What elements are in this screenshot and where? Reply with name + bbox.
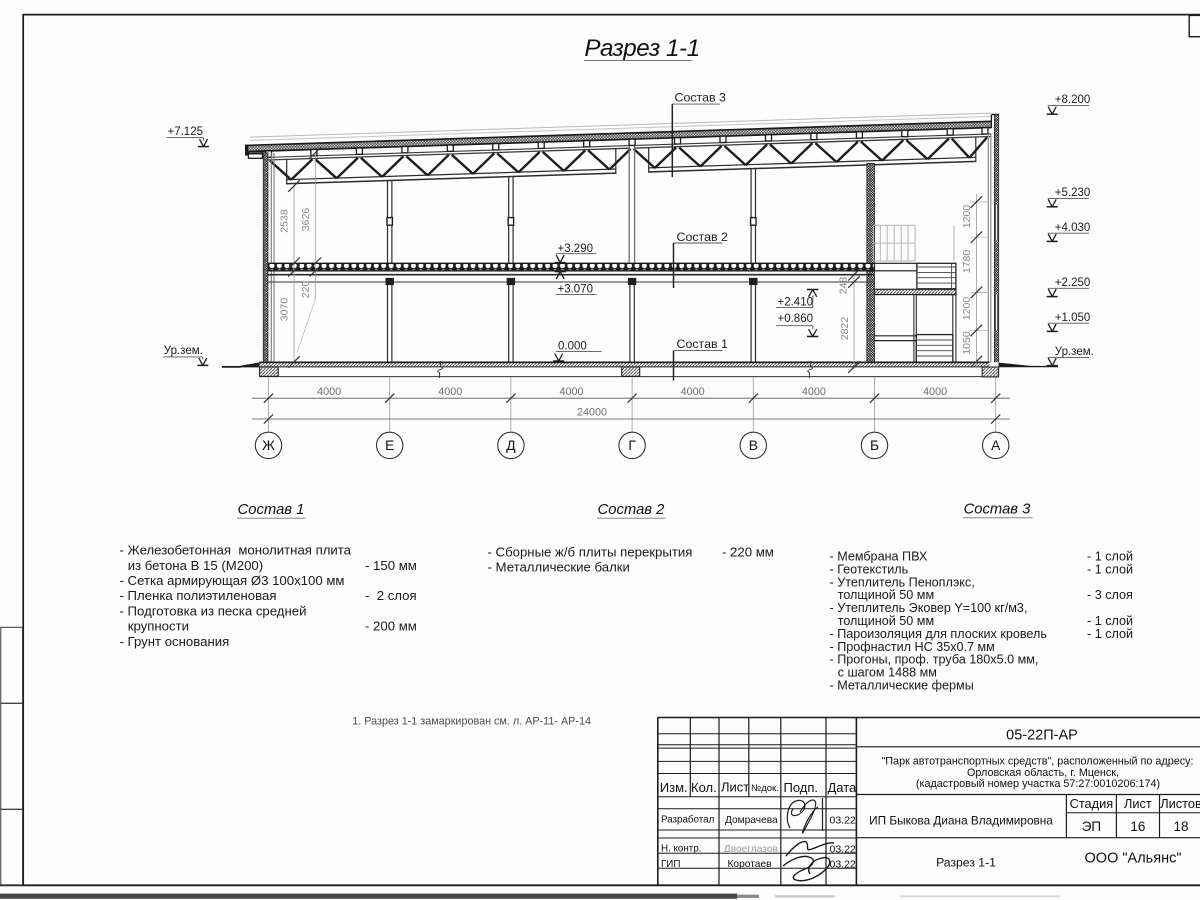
svg-text:Состав 2: Состав 2: [598, 502, 666, 518]
svg-text:03.22: 03.22: [830, 814, 856, 826]
svg-text:- 1 слой: - 1 слой: [1087, 614, 1133, 628]
svg-text:ООО "Альянс": ООО "Альянс": [1085, 851, 1182, 867]
svg-text:+3.290: +3.290: [558, 243, 594, 255]
svg-text:Домрачева: Домрачева: [725, 815, 778, 826]
svg-text:4000: 4000: [559, 386, 583, 398]
svg-text:03.22: 03.22: [830, 843, 856, 855]
svg-text:+2.250: +2.250: [1055, 277, 1091, 289]
svg-text:+5.230: +5.230: [1055, 187, 1091, 199]
svg-text:- Металлические фермы: - Металлические фермы: [830, 679, 974, 693]
svg-text:- Грунт основания: - Грунт основания: [120, 634, 230, 649]
svg-text:- Металлические балки: - Металлические балки: [488, 560, 630, 575]
svg-text:крупности: крупности: [128, 619, 189, 634]
svg-text:24000: 24000: [577, 407, 607, 419]
svg-text:Г: Г: [628, 438, 636, 453]
svg-text:- Прогоны, проф. труба 180х5.0: - Прогоны, проф. труба 180х5.0 мм,: [830, 653, 1039, 667]
svg-text:+2.410: +2.410: [778, 297, 814, 309]
svg-text:Состав 1: Состав 1: [677, 337, 728, 351]
svg-text:- Пленка полиэтиленовая: - Пленка полиэтиленовая: [120, 588, 277, 603]
svg-text:- Сборные ж/б плиты перекрытия: - Сборные ж/б плиты перекрытия: [488, 545, 693, 560]
svg-text:Подп.: Подп.: [784, 780, 819, 795]
svg-text:Изм.: Изм.: [660, 780, 688, 795]
svg-text:4000: 4000: [923, 386, 947, 398]
svg-text:ИП Быкова Диана Владимировна: ИП Быкова Диана Владимировна: [869, 814, 1053, 828]
svg-text:Состав 3: Состав 3: [675, 91, 726, 105]
svg-text:- 220 мм: - 220 мм: [722, 545, 774, 560]
svg-text:1050: 1050: [961, 331, 973, 355]
svg-text:- Утеплитель Пеноплэкс,: - Утеплитель Пеноплэкс,: [830, 575, 975, 589]
svg-text:Орловская область, г. Мценск,: Орловская область, г. Мценск,: [967, 767, 1119, 779]
svg-text:Разрез 1-1: Разрез 1-1: [584, 35, 699, 62]
svg-text:+0.860: +0.860: [778, 313, 814, 325]
svg-text:- Мембрана ПВХ: - Мембрана ПВХ: [830, 550, 928, 564]
svg-text:220: 220: [300, 281, 312, 299]
svg-text:Состав 1: Состав 1: [238, 502, 305, 518]
svg-text:Ур.зем.: Ур.зем.: [1055, 346, 1094, 358]
svg-text:1200: 1200: [961, 205, 973, 229]
svg-text:Дата: Дата: [828, 780, 858, 795]
svg-text:1. Разрез 1-1 замаркирован см.: 1. Разрез 1-1 замаркирован см. л. АР-11-…: [352, 715, 591, 727]
svg-text:4000: 4000: [681, 386, 705, 398]
svg-text:3070: 3070: [279, 298, 291, 322]
svg-text:+1.050: +1.050: [1055, 312, 1091, 324]
svg-text:+7.125: +7.125: [168, 126, 204, 138]
svg-text:- Утеплитель Эковер Y=100 кг/м: - Утеплитель Эковер Y=100 кг/м3,: [830, 601, 1028, 615]
svg-text:Ж: Ж: [262, 438, 275, 453]
svg-text:Листов: Листов: [1160, 796, 1200, 811]
svg-text:- Сетка армирующая Ø3 100х100: - Сетка армирующая Ø3 100х100 мм: [120, 573, 345, 588]
svg-text:- 2 слоя: - 2 слоя: [365, 588, 417, 603]
svg-text:- 1 слой: - 1 слой: [1087, 627, 1133, 641]
svg-text:1200: 1200: [961, 297, 973, 321]
svg-text:толщиной 50 мм: толщиной 50 мм: [838, 588, 934, 602]
svg-text:16: 16: [1130, 819, 1145, 834]
svg-text:- 200 мм: - 200 мм: [365, 619, 417, 634]
svg-text:(кадастровый номер участка 57:: (кадастровый номер участка 57:27:0010206…: [916, 778, 1160, 790]
svg-text:0.000: 0.000: [558, 340, 587, 352]
svg-text:Лист: Лист: [721, 780, 749, 795]
svg-text:Состав 2: Состав 2: [677, 230, 728, 244]
svg-text:- Пароизоляция для плоских кро: - Пароизоляция для плоских кровель: [830, 627, 1048, 641]
svg-text:3626: 3626: [300, 208, 312, 232]
svg-text:- 3 слоя: - 3 слоя: [1087, 588, 1133, 602]
svg-text:248: 248: [838, 277, 850, 295]
svg-text:Двоеглазов: Двоеглазов: [724, 844, 778, 855]
svg-text:ГИП: ГИП: [661, 859, 680, 870]
svg-text:- Подготовка из песка средней: - Подготовка из песка средней: [120, 603, 307, 618]
svg-text:Стадия: Стадия: [1070, 796, 1114, 811]
svg-text:Н. контр.: Н. контр.: [661, 844, 701, 855]
svg-text:с шагом 1488 мм: с шагом 1488 мм: [838, 666, 937, 680]
svg-text:1780: 1780: [961, 250, 973, 274]
svg-text:"Парк автотранспортных средств: "Парк автотранспортных средств", располо…: [881, 755, 1193, 767]
svg-text:Разработал: Разработал: [661, 815, 715, 826]
svg-text:Состав 3: Состав 3: [964, 502, 1032, 518]
svg-text:ЭП: ЭП: [1082, 819, 1101, 834]
svg-text:- Геотекстиль: - Геотекстиль: [830, 562, 909, 576]
svg-text:- Железобетонная монолитная п: - Железобетонная монолитная плита: [120, 543, 352, 558]
svg-text:4000: 4000: [317, 386, 341, 398]
svg-text:4000: 4000: [802, 386, 826, 398]
svg-text:- 1 слой: - 1 слой: [1087, 562, 1133, 576]
svg-text:- Профнастил НС 35х0.7 мм: - Профнастил НС 35х0.7 мм: [830, 640, 995, 654]
svg-text:2538: 2538: [279, 209, 291, 233]
svg-text:толщиной 50 мм: толщиной 50 мм: [838, 614, 934, 628]
svg-text:+3.070: +3.070: [558, 283, 594, 295]
svg-text:05-22П-АР: 05-22П-АР: [1006, 728, 1078, 744]
svg-text:- 1 слой: - 1 слой: [1087, 550, 1133, 564]
svg-text:- 150 мм: - 150 мм: [365, 558, 417, 573]
svg-text:В: В: [749, 438, 758, 453]
svg-text:Е: Е: [385, 438, 394, 453]
svg-text:Разрез 1-1: Разрез 1-1: [936, 856, 996, 870]
svg-text:Б: Б: [870, 438, 879, 453]
svg-text:4000: 4000: [438, 386, 462, 398]
svg-text:Коротаев: Коротаев: [728, 859, 772, 870]
svg-text:03.22: 03.22: [830, 858, 856, 870]
svg-text:А: А: [991, 438, 1001, 453]
svg-text:2822: 2822: [839, 317, 851, 341]
svg-text:Кол.: Кол.: [691, 780, 717, 795]
svg-text:Ур.зем.: Ур.зем.: [164, 345, 203, 357]
svg-text:+8.200: +8.200: [1055, 94, 1091, 106]
svg-text:№док.: №док.: [751, 783, 779, 794]
svg-text:+4.030: +4.030: [1055, 222, 1091, 234]
svg-text:Д: Д: [506, 438, 516, 453]
svg-text:18: 18: [1173, 819, 1188, 834]
svg-text:Лист: Лист: [1124, 796, 1152, 811]
svg-text:из бетона В 15 (М200): из бетона В 15 (М200): [128, 558, 263, 573]
